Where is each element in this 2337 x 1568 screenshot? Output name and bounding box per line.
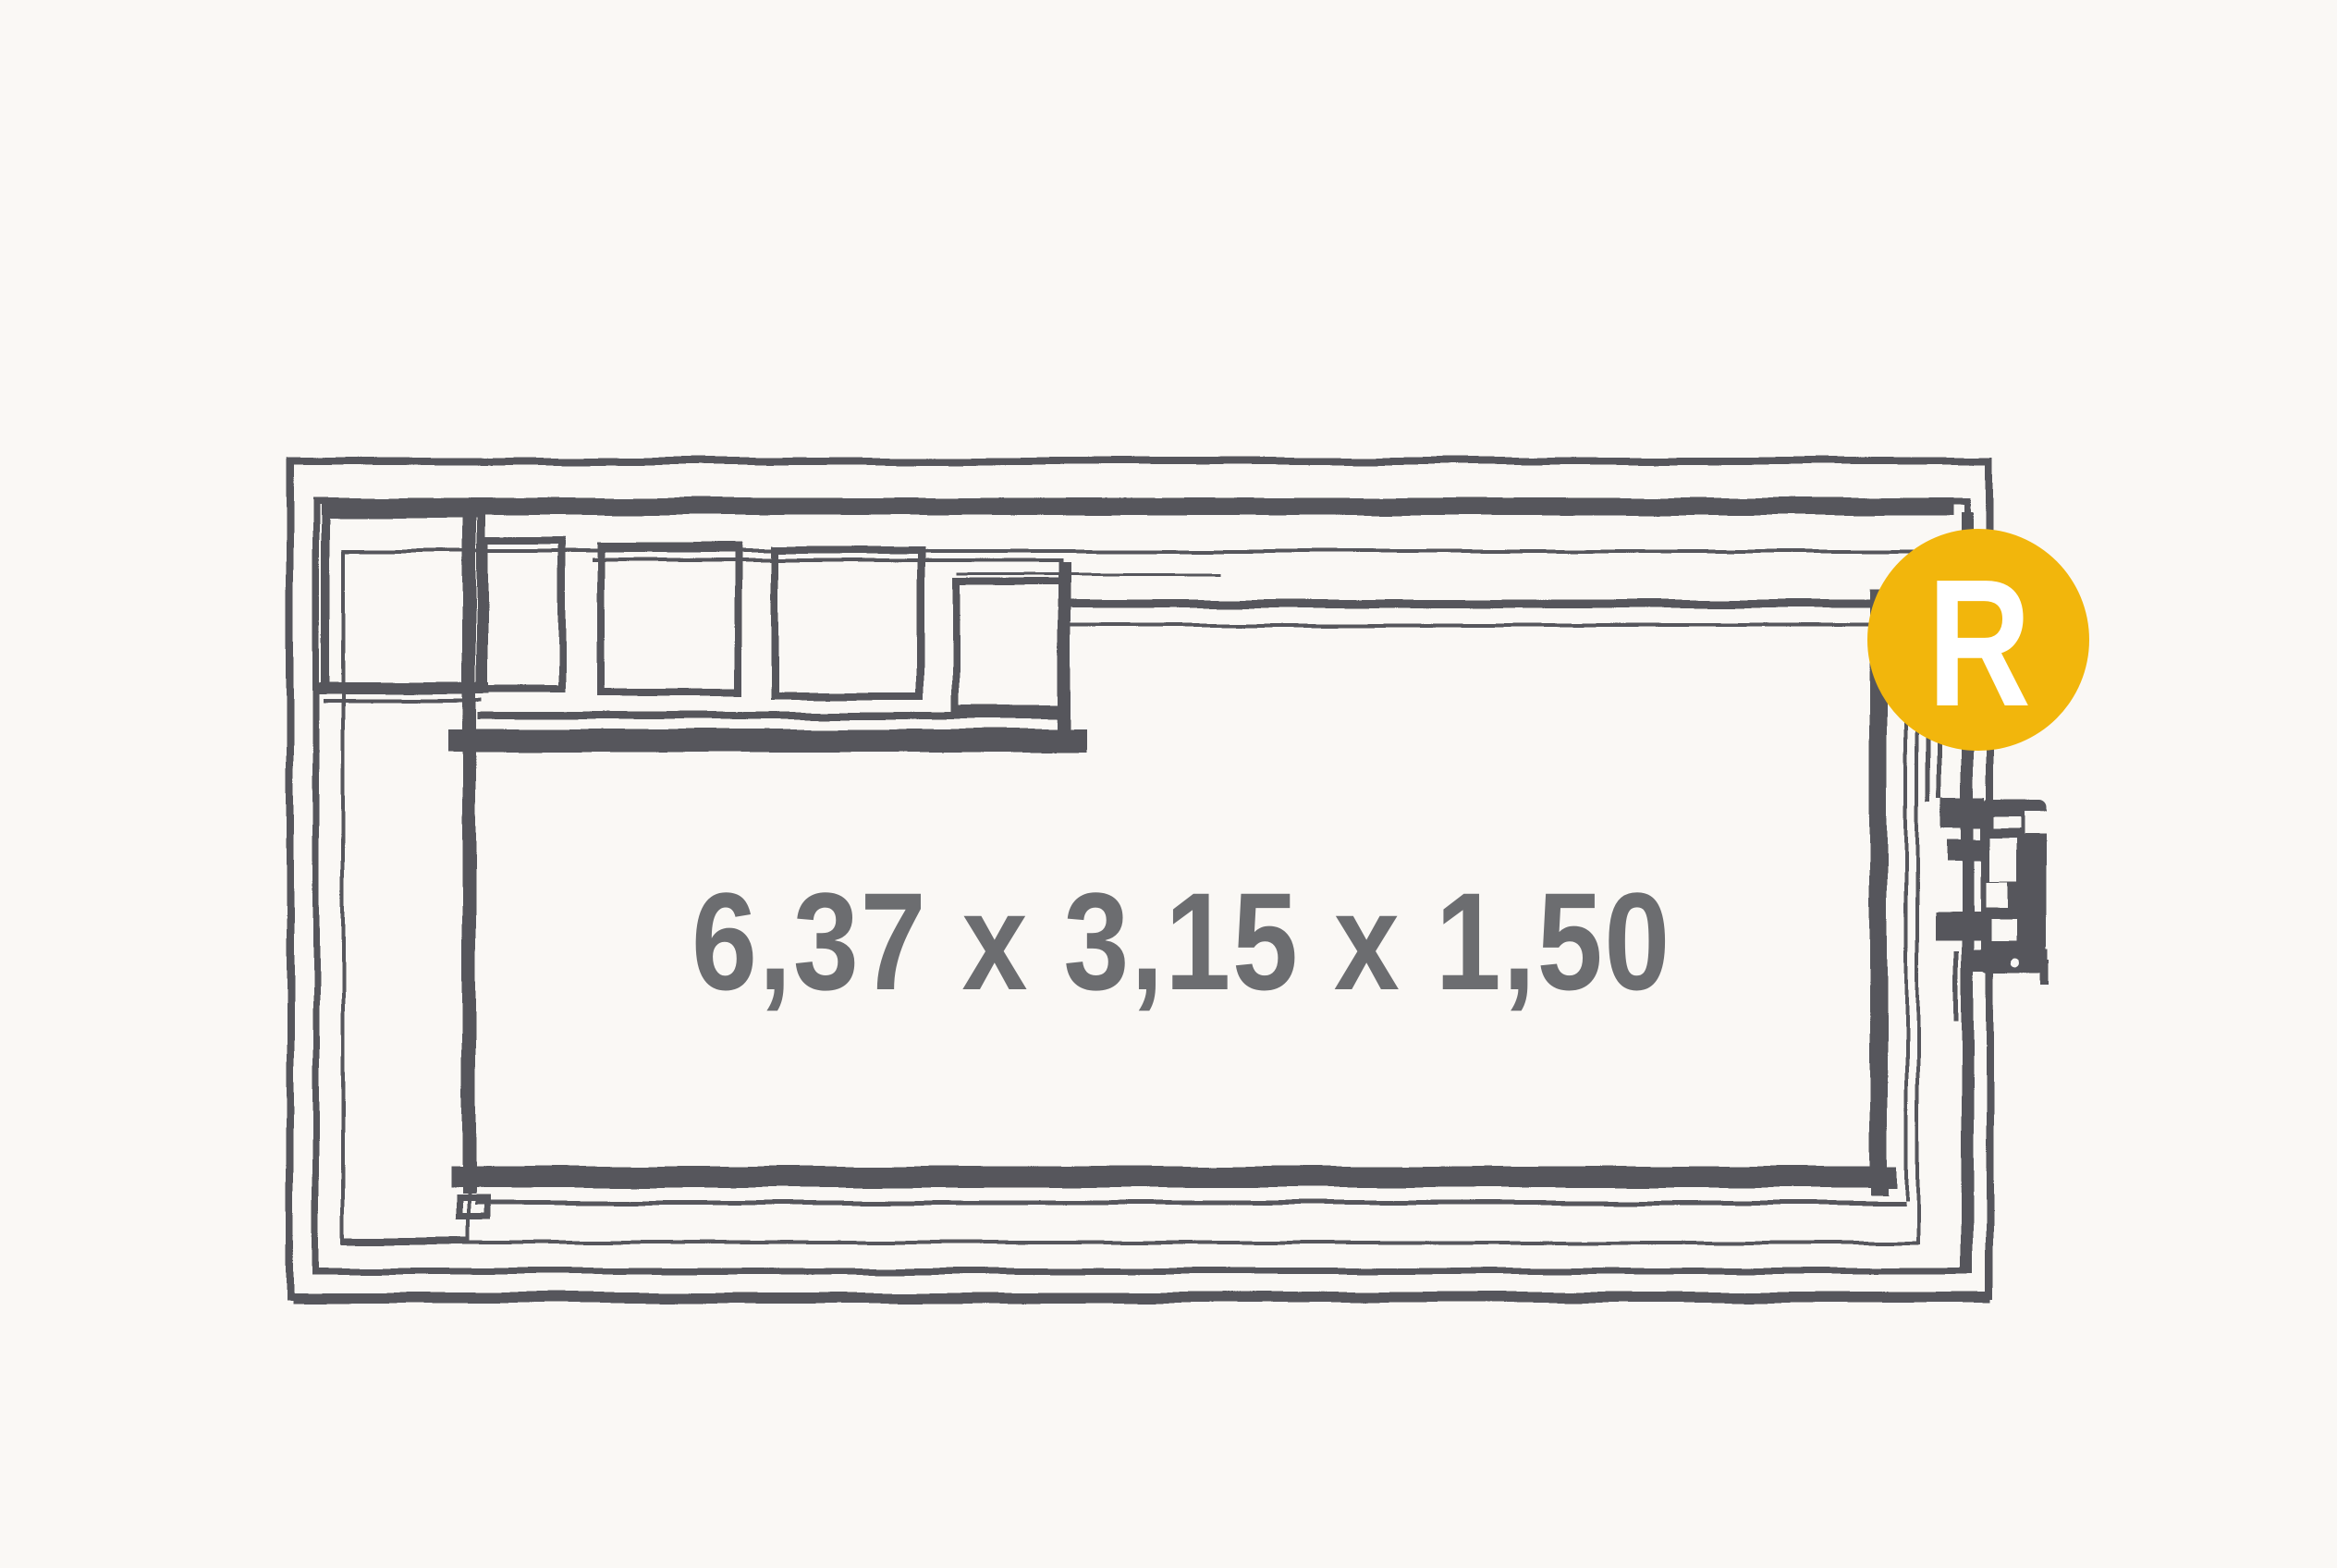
skimmer-cutout	[1989, 838, 2017, 880]
skimmer-cutout	[2025, 812, 2049, 834]
sketch-canvas: 6,37 x 3,15 x 1,50 R	[0, 0, 2337, 1568]
skimmer-cutout	[1993, 817, 2021, 828]
pool-plan-drawing: 6,37 x 3,15 x 1,50 R	[0, 0, 2337, 1568]
dimensions-label: 6,37 x 3,15 x 1,50	[691, 864, 1671, 1019]
skimmer-cutout	[2011, 960, 2020, 969]
skimmer-cutout	[1991, 919, 2017, 941]
brand-badge-letter: R	[1927, 542, 2031, 744]
skimmer-cutout	[1986, 881, 2008, 907]
brand-badge: R	[1867, 529, 2089, 751]
